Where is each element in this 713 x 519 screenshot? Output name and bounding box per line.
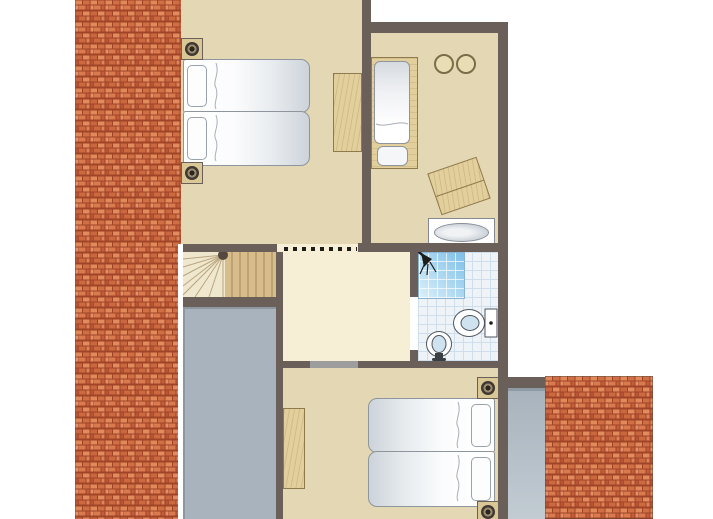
bathroom-door-opening [410,297,418,350]
wall [358,243,498,252]
gray-strip-bottom-right [508,388,545,519]
landing-floor [277,244,410,361]
spotlight-icon [181,162,203,184]
pillow [187,65,207,107]
void-gray-area [183,307,276,519]
spotlight-icon [181,38,203,60]
pillow [471,404,491,447]
spotlight-icon [477,501,499,519]
wall [362,22,508,33]
wall [276,252,283,519]
spotlight-icon [477,377,499,399]
washbasin-icon [421,331,458,362]
wall [498,22,508,519]
round-stool [434,54,454,74]
wall [183,297,283,307]
pillow [471,457,491,501]
toilet-icon [452,306,498,340]
floor-plan [0,0,713,519]
wall [183,244,277,252]
double-bed-half [368,398,495,453]
winder-stairs [183,252,276,297]
round-stool [456,54,476,74]
desk [333,73,362,152]
pillow [187,117,207,160]
single-bed [183,111,310,166]
dashed-clearance-line [284,247,357,251]
roof-tiles-bottom-right [545,376,653,519]
double-bed-half [368,451,495,507]
bedroom-door-opening [310,361,358,368]
roof-tiles-left [75,0,181,519]
wall [362,0,371,252]
single-bed [183,59,310,113]
bed-foot-bench [377,146,408,166]
desk [283,408,305,489]
single-bed [374,61,410,144]
